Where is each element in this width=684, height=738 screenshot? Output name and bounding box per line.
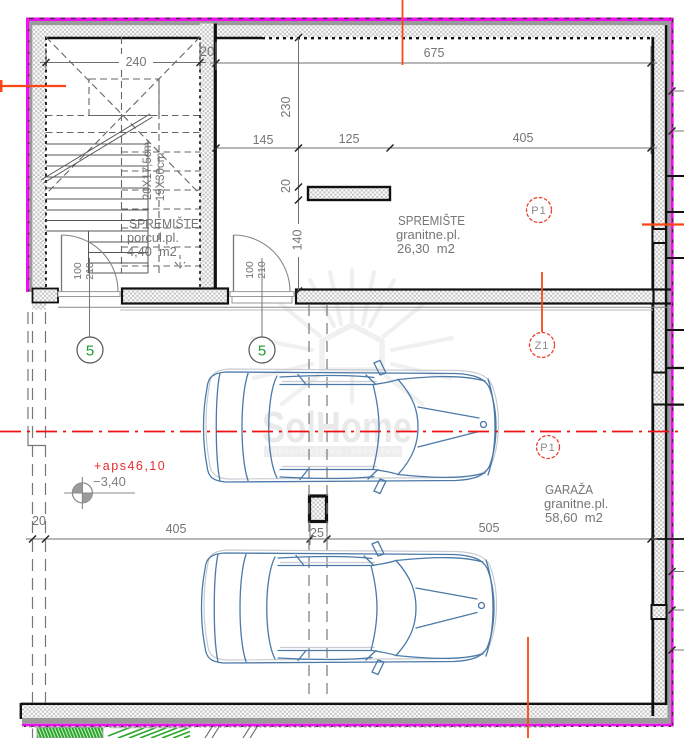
svg-text:25: 25 [310,526,324,540]
svg-text:230: 230 [279,97,293,118]
svg-text:−3,40: −3,40 [93,474,126,489]
svg-text:58,60 m2: 58,60 m2 [545,510,603,525]
svg-text:GARAŽA: GARAŽA [545,482,593,497]
svg-text:19X30cm: 19X30cm [155,153,167,202]
svg-text:SPREMIŠTE: SPREMIŠTE [398,213,465,228]
svg-text:+aps46,10: +aps46,10 [94,459,166,473]
svg-text:porcul.pl.: porcul.pl. [127,230,179,245]
svg-text:P1: P1 [531,205,546,217]
svg-text:5: 5 [86,343,94,360]
svg-text:5: 5 [258,343,266,360]
svg-text:20: 20 [32,514,46,528]
svg-text:SPREMIŠTE: SPREMIŠTE [129,216,199,231]
svg-text:100: 100 [72,262,84,280]
svg-text:granitne.pl.: granitne.pl. [396,227,460,242]
svg-text:125: 125 [339,132,360,146]
svg-text:GRADITELJSTVO I NEKRETNINE: GRADITELJSTVO I NEKRETNINE [272,449,407,456]
svg-text:20X17,5cm: 20X17,5cm [142,142,154,200]
svg-text:675: 675 [424,46,445,60]
svg-text:Z1: Z1 [535,340,550,352]
svg-text:granitne.pl.: granitne.pl. [544,496,608,511]
svg-text:140: 140 [291,230,305,251]
svg-text:26,30 m2: 26,30 m2 [397,241,455,256]
svg-text:145: 145 [253,133,274,147]
svg-text:20: 20 [279,179,293,193]
svg-text:405: 405 [166,522,187,536]
svg-text:240: 240 [126,55,147,69]
svg-text:4,40 m2: 4,40 m2 [127,244,177,259]
svg-text:SolHome: SolHome [262,403,412,452]
svg-text:P1: P1 [540,442,555,454]
svg-text:505: 505 [479,521,500,535]
svg-text:405: 405 [513,131,534,145]
svg-text:20: 20 [199,44,214,59]
svg-text:100: 100 [244,261,256,279]
